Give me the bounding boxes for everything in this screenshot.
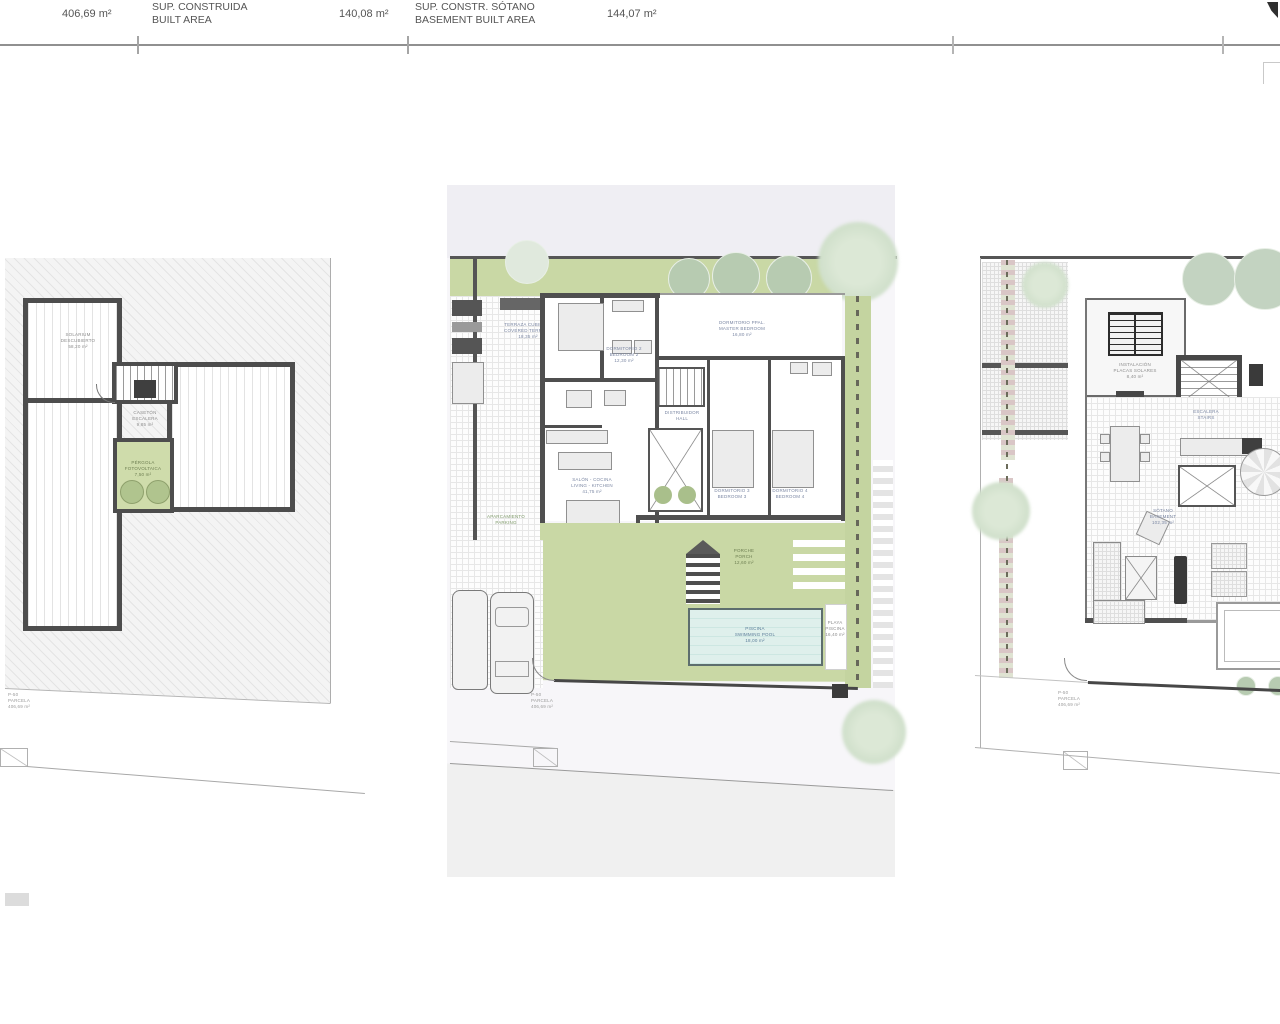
bed <box>712 430 754 488</box>
storage-grid <box>1211 543 1247 569</box>
outdoor-kitchen-unit <box>452 322 482 332</box>
gate-swing-arc <box>1064 658 1087 681</box>
chair <box>1100 434 1110 444</box>
parcel-label: P-50 PARCELA 406,69 m² <box>1058 690 1113 708</box>
outdoor-table <box>452 362 484 404</box>
stair-label: ESCALERA STAIRS <box>1178 409 1234 421</box>
shelving <box>1093 600 1145 624</box>
patio-tree-icon <box>678 486 696 504</box>
dining-table <box>566 500 620 526</box>
pergola-beam <box>982 430 1068 435</box>
planter-label: PÉRGOLA FOTOVOLTAICA 7,50 m² <box>118 460 168 478</box>
parcel-label: P-50 PARCELA 406,69 m² <box>531 692 586 710</box>
bedroom4-label: DORMITORIO 4 BEDROOM 4 <box>768 488 812 500</box>
sidewalk-edge-line <box>975 747 1280 774</box>
terrace-edge <box>660 293 845 295</box>
built-area-label-en: BUILT AREA <box>152 14 248 27</box>
bush-icon <box>1268 676 1280 696</box>
header-tick <box>407 36 409 54</box>
pergola-beam <box>982 363 1068 368</box>
plot-boundary-top <box>980 256 1280 259</box>
chair <box>1100 452 1110 462</box>
car-rear-window <box>495 661 529 677</box>
bedroom2-label: DORMITORIO 2 BEDROOM 2 12,30 m² <box>598 346 650 364</box>
bath-fixture <box>604 390 626 406</box>
sidewalk-ramp <box>1063 751 1088 770</box>
wall <box>540 425 602 428</box>
parking-label: APARCAMIENTO PARKING <box>486 514 526 526</box>
tree-icon <box>818 222 898 302</box>
bush-icon <box>1236 676 1256 696</box>
bedroom3-label: DORMITORIO 3 BEDROOM 3 <box>710 488 754 500</box>
kitchen-island <box>558 452 612 470</box>
wardrobe <box>612 300 644 312</box>
master-label: DORMITORIO PPAL. MASTER BEDROOM 16,80 m² <box>712 320 772 338</box>
pool-inner-line <box>1224 610 1280 662</box>
bush-icon <box>505 240 549 284</box>
porch-label: PORCHE PORCH 12,60 m² <box>722 548 766 566</box>
tree-icon <box>842 700 906 764</box>
outdoor-kitchen-unit <box>452 300 482 316</box>
sidewalk-edge-line <box>27 766 365 794</box>
parasol-icon <box>1240 448 1280 496</box>
chair <box>1140 434 1150 444</box>
header-tick <box>1222 36 1224 54</box>
sheet-corner-mark <box>1267 2 1278 18</box>
tree-icon <box>146 480 170 504</box>
wall <box>655 356 845 360</box>
hall-label: DISTRIBUIDOR HALL <box>662 410 702 422</box>
sidewalk-ramp <box>0 748 28 767</box>
basement-label-es: SUP. CONSTR. SÓTANO <box>415 1 535 14</box>
neighbor-steps <box>873 460 893 688</box>
living-label: SALÓN - COCINA LIVING - KITCHEN 41,75 m² <box>562 477 622 495</box>
plot-area-value: 406,69 m² <box>62 8 112 20</box>
pergola-stairs <box>686 554 720 604</box>
outdoor-kitchen-unit <box>452 338 482 354</box>
wall <box>636 515 845 520</box>
outdoor-kitchen-unit <box>500 298 540 310</box>
built-area-label-es: SUP. CONSTRUIDA <box>152 1 248 14</box>
drawing-sheet: 406,69 m² SUP. CONSTRUIDA BUILT AREA 140… <box>0 0 1280 1024</box>
pool-label: PISCINA SWIMMING POOL 18,00 m² <box>710 626 800 644</box>
header-rule-line <box>0 44 1280 46</box>
tree-icon <box>972 482 1030 540</box>
basement-area-label: SUP. CONSTR. SÓTANO BASEMENT BUILT AREA <box>415 1 535 27</box>
car-icon <box>490 592 534 694</box>
pool-deck-corner <box>1216 602 1280 670</box>
armchairs <box>1125 556 1157 600</box>
garden-steps <box>793 540 845 596</box>
pergola-roof <box>686 540 720 554</box>
kitchen-counter <box>546 430 608 444</box>
header-tick <box>952 36 954 54</box>
skylight <box>1178 465 1236 507</box>
solar-label: INSTALACIÓN PLACAS SOLARES 8,40 m² <box>1092 362 1178 380</box>
plot-boundary-right <box>330 258 331 703</box>
deck-label: PLAYA PISCINA 16,40 m² <box>824 620 846 638</box>
bath-fixture <box>566 390 592 408</box>
stair-label: CASETÓN ESCALERA 9,85 m² <box>124 410 166 428</box>
stair-landing <box>134 380 156 398</box>
bush-icon <box>1182 252 1236 306</box>
fence-post-line <box>856 296 859 688</box>
solarium-wing-left <box>23 398 122 631</box>
basement-label-en: BASEMENT BUILT AREA <box>415 14 535 27</box>
fence-post-line <box>1006 260 1008 678</box>
header-tick <box>137 36 139 54</box>
long-table <box>1110 426 1140 482</box>
double-door <box>1174 556 1187 604</box>
wall <box>1085 298 1087 622</box>
patio-tree-icon <box>654 486 672 504</box>
bed <box>772 430 814 488</box>
solarium-wing-right <box>167 362 295 512</box>
frame-corner-line <box>1263 62 1264 84</box>
bed <box>558 303 604 351</box>
shaft-box <box>1249 364 1263 386</box>
utility-box <box>832 684 848 698</box>
margin-mark <box>5 893 29 906</box>
car-icon <box>452 590 488 690</box>
tree-icon <box>120 480 144 504</box>
bath-fixture <box>790 362 808 374</box>
bath-fixture <box>812 362 832 376</box>
staircase <box>657 367 705 407</box>
wall <box>540 378 659 382</box>
built-area-label: SUP. CONSTRUIDA BUILT AREA <box>152 1 248 27</box>
wall <box>841 356 845 521</box>
basement-label: SÓTANO BASEMENT 102,35 m² <box>1138 508 1188 526</box>
basement-area-value: 144,07 m² <box>607 8 657 20</box>
frame-corner-line <box>1263 62 1280 63</box>
plot-boundary-bottom-light <box>975 675 1088 683</box>
tree-icon <box>1022 262 1068 308</box>
solar-panel-divider <box>1134 312 1136 356</box>
hedge-column <box>1001 260 1015 460</box>
built-area-value: 140,08 m² <box>339 8 389 20</box>
chair <box>1140 452 1150 462</box>
solarium-label: SOLARIUM DESCUBIERTO 58,20 m² <box>48 332 108 350</box>
storage-grid <box>1211 571 1247 597</box>
parcel-label: P-50 PARCELA 406,69 m² <box>8 692 63 710</box>
sidewalk-ramp <box>533 748 558 767</box>
car-windshield <box>495 607 529 627</box>
